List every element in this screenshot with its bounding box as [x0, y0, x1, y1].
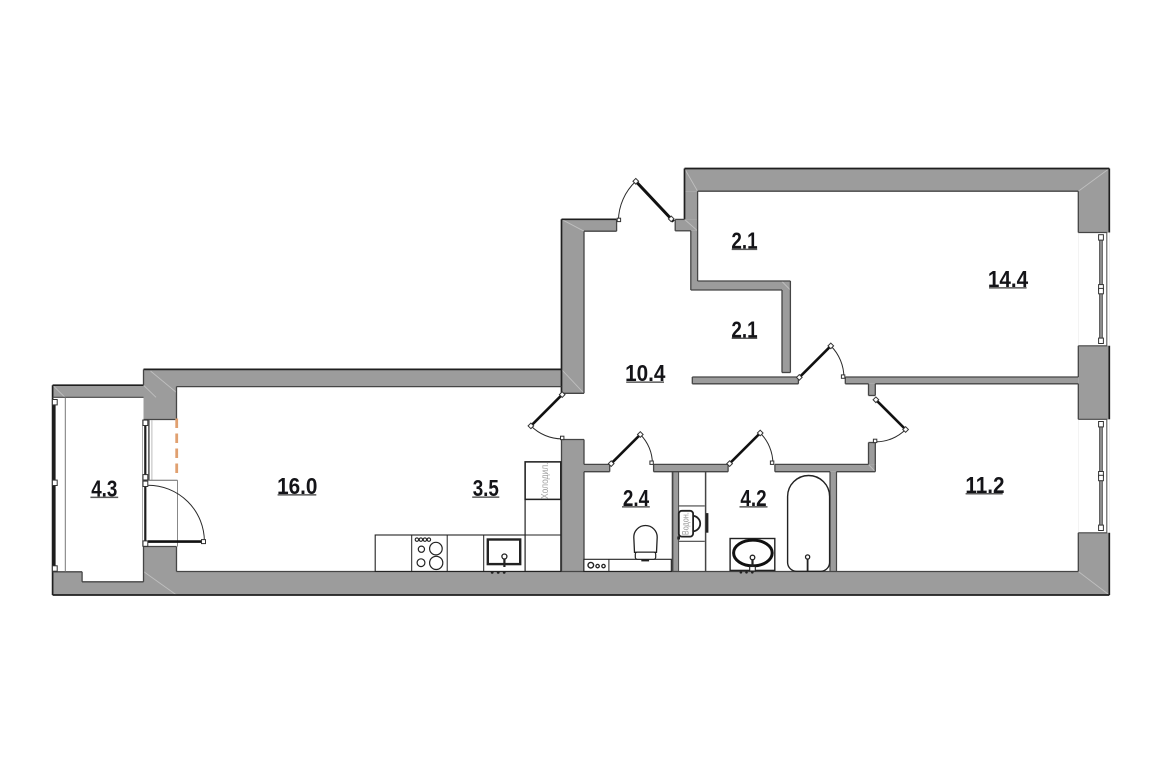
- svg-text:Водон.: Водон.: [681, 512, 691, 535]
- svg-text:Холодил.: Холодил.: [539, 463, 551, 499]
